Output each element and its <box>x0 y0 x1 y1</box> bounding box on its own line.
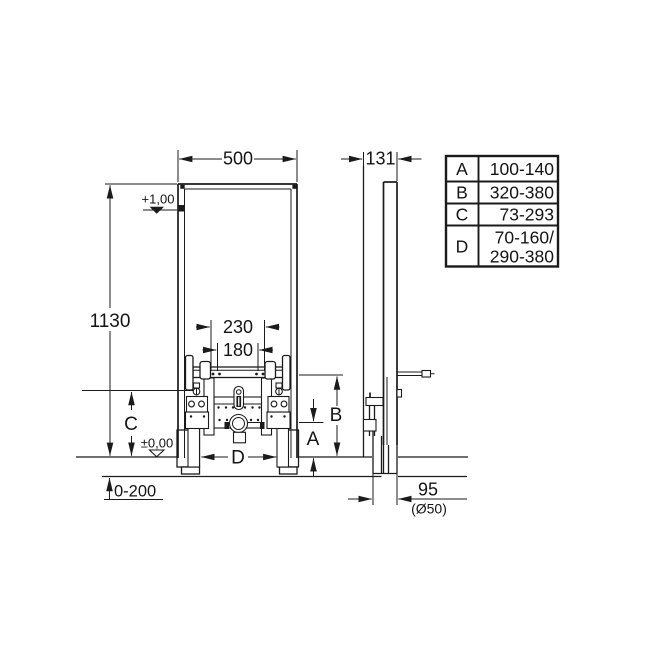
table-value-line2: 290-380 <box>490 247 554 267</box>
crossbar-slide-right <box>283 356 291 391</box>
crossbar-slide-left <box>186 356 194 391</box>
table-value: 73-293 <box>500 205 555 225</box>
dim-width-500: 500 <box>178 149 297 183</box>
dim-depth-131: 131 <box>341 149 422 182</box>
level-zero-label: ±0,00 <box>141 436 173 451</box>
hanger-stud-left <box>200 362 211 380</box>
dim-depth-label: 131 <box>365 149 395 169</box>
side-profile <box>384 182 398 445</box>
table-key: C <box>456 205 469 225</box>
dim-a-label: A <box>307 429 320 450</box>
floor-buildup-label: 0-200 <box>114 483 156 501</box>
table-key: B <box>456 183 468 203</box>
table-row-d: D 70-160/ 290-380 <box>456 228 555 267</box>
table-row-c: C 73-293 <box>456 205 554 225</box>
level-top-label: +1,00 <box>142 192 175 207</box>
dim-b: B <box>299 375 343 456</box>
dim-c-label: C <box>124 414 138 435</box>
table-key: D <box>456 237 469 257</box>
dimension-table: A 100-140 B 320-380 C 73-293 D 70-160/ 2… <box>446 156 558 267</box>
dim-d: D <box>201 448 276 469</box>
table-value-line1: 70-160/ <box>495 228 554 248</box>
mounting-stud <box>397 371 435 378</box>
dim-b-label: B <box>330 405 343 426</box>
floor-lines <box>76 457 468 477</box>
corner-screw-right <box>292 185 296 189</box>
dim-drain-pipe-label: (Ø50) <box>411 501 447 517</box>
technical-drawing: 500 1130 +1,00 230 180 <box>0 0 650 650</box>
dim-width-label: 500 <box>223 149 253 169</box>
level-mark-zero: ±0,00 <box>141 436 173 457</box>
dim-drain-95: 95 (Ø50) <box>348 474 467 517</box>
level-mark-top: +1,00 <box>142 192 177 214</box>
dim-height-label: 1130 <box>90 311 131 332</box>
level-anchor <box>178 205 185 212</box>
side-foot <box>373 431 397 474</box>
dim-spacing-inner-label: 180 <box>223 340 253 360</box>
dim-d-label: D <box>231 448 245 469</box>
front-dimensions: 500 1130 +1,00 230 180 <box>82 149 343 501</box>
dim-floor-buildup: 0-200 <box>104 478 163 501</box>
table-row-a: A 100-140 <box>456 159 554 179</box>
hanger-stud-right <box>265 362 276 380</box>
table-key: A <box>456 159 468 179</box>
corner-screw-left <box>180 185 184 189</box>
table-value: 100-140 <box>490 159 554 179</box>
side-view <box>364 166 435 474</box>
table-value: 320-380 <box>490 183 554 203</box>
crossbar <box>186 356 291 391</box>
profile-clip <box>397 390 402 398</box>
dim-drain-distance-label: 95 <box>418 480 438 500</box>
dim-spacing-outer-label: 230 <box>223 317 253 337</box>
adjustment-slot <box>234 387 244 410</box>
wall-bracket-side <box>364 393 384 437</box>
table-row-b: B 320-380 <box>456 183 554 203</box>
drain-pipe-front <box>234 432 246 443</box>
